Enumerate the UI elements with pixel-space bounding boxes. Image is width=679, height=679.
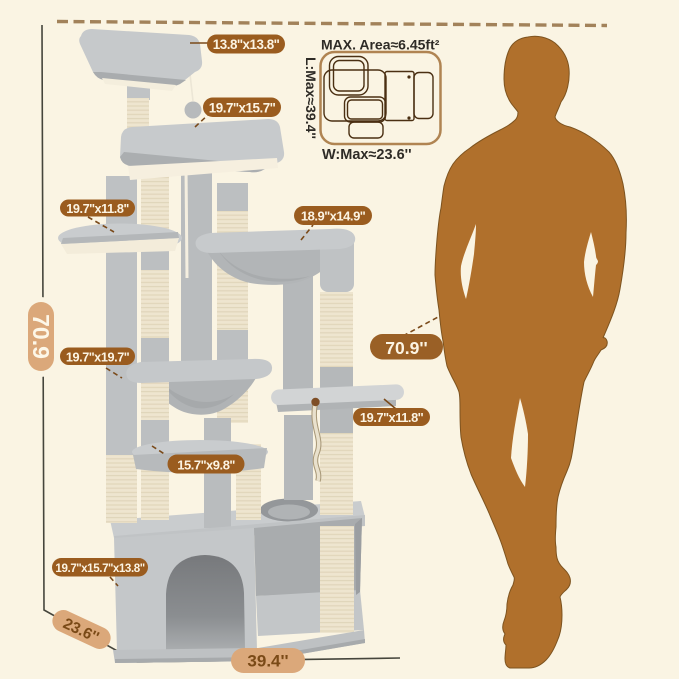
svg-text:L:Max≈39.4'': L:Max≈39.4'' [303,57,319,139]
svg-text:18.9''x14.9'': 18.9''x14.9'' [301,208,366,223]
svg-text:70.9'': 70.9'' [385,338,427,358]
svg-text:19.7''x11.8'': 19.7''x11.8'' [360,410,424,425]
svg-text:MAX. Area≈6.45ft²: MAX. Area≈6.45ft² [321,37,440,53]
svg-text:15.7''x9.8'': 15.7''x9.8'' [177,457,235,472]
svg-text:19.7''x15.7'': 19.7''x15.7'' [209,100,276,115]
svg-text:19.7''x15.7''x13.8'': 19.7''x15.7''x13.8'' [55,562,145,575]
svg-text:70.9: 70.9 [28,314,54,359]
svg-text:19.7''x11.8'': 19.7''x11.8'' [66,202,129,216]
svg-text:39.4'': 39.4'' [247,652,288,671]
svg-text:13.8''x13.8'': 13.8''x13.8'' [213,37,280,52]
svg-text:W:Max≈23.6'': W:Max≈23.6'' [322,147,412,163]
svg-text:19.7''x19.7'': 19.7''x19.7'' [66,350,130,364]
